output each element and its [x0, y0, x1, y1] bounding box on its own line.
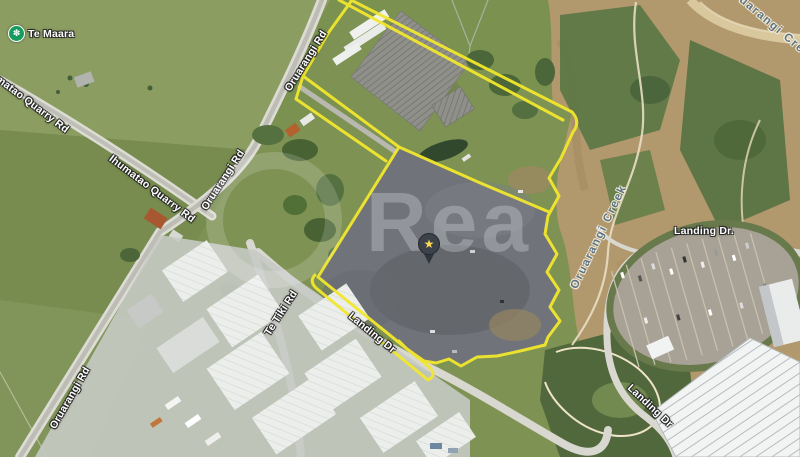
poi-te-maara-label: Te Maara [28, 28, 74, 40]
marker-head: ★ [418, 233, 440, 255]
park-icon: ✽ [8, 25, 25, 42]
marker-tail [424, 254, 434, 264]
satellite-imagery [0, 0, 800, 457]
poi-te-maara[interactable]: ✽ Te Maara [8, 25, 74, 42]
star-icon: ★ [424, 238, 435, 250]
satellite-map-canvas[interactable]: ✽ Te Maara Ihumatao Quarry Rd Ihumatao Q… [0, 0, 800, 457]
